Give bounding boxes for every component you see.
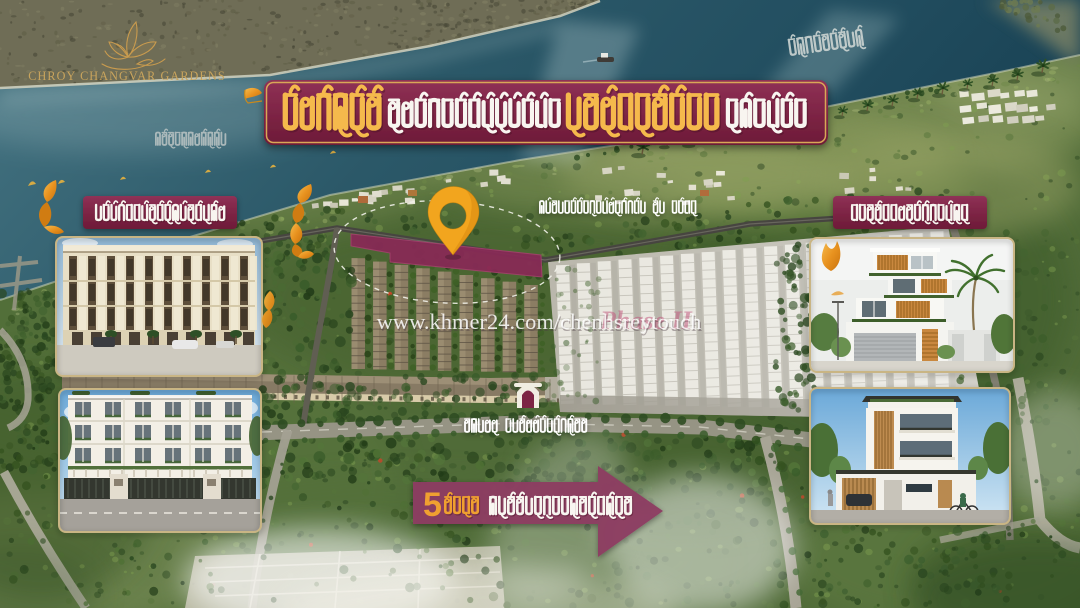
svg-text:www.khmer24.com/chenhsreytouch: www.khmer24.com/chenhsreytouch xyxy=(377,309,702,334)
svg-text:5: 5 xyxy=(423,486,442,524)
svg-text:CHROY CHANGVAR GARDENS: CHROY CHANGVAR GARDENS xyxy=(28,69,226,83)
